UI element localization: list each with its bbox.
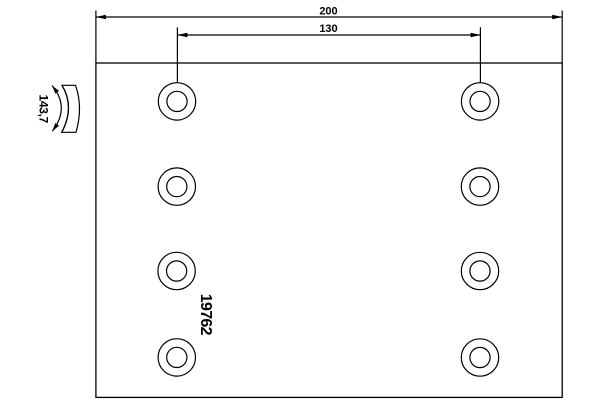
svg-text:200: 200 [319, 6, 337, 18]
svg-text:130: 130 [319, 23, 337, 35]
svg-text:19762: 19762 [197, 294, 214, 336]
svg-text:143,7: 143,7 [37, 94, 51, 123]
